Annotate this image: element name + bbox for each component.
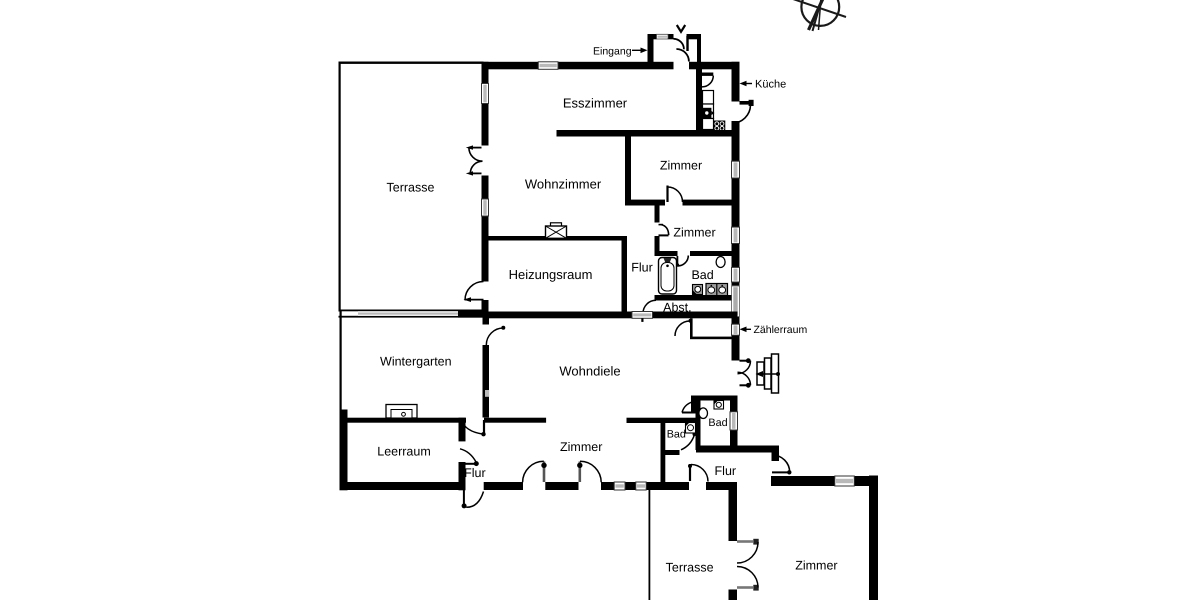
svg-text:Küche: Küche — [755, 79, 786, 91]
svg-text:Flur: Flur — [631, 261, 653, 275]
svg-text:Esszimmer: Esszimmer — [563, 96, 628, 111]
svg-text:Wohnzimmer: Wohnzimmer — [525, 177, 602, 192]
svg-text:Wintergarten: Wintergarten — [380, 355, 452, 369]
svg-text:Flur: Flur — [715, 464, 737, 478]
svg-text:Zimmer: Zimmer — [673, 226, 715, 240]
svg-text:Terrasse: Terrasse — [387, 181, 435, 195]
svg-text:Leerraum: Leerraum — [377, 445, 431, 459]
svg-text:Eingang: Eingang — [593, 46, 632, 58]
svg-text:Bad: Bad — [667, 429, 686, 441]
svg-text:Zimmer: Zimmer — [660, 159, 702, 173]
svg-text:Terrasse: Terrasse — [666, 561, 714, 575]
svg-text:Heizungsraum: Heizungsraum — [509, 267, 593, 282]
svg-text:Zimmer: Zimmer — [795, 559, 837, 573]
svg-text:Zählerraum: Zählerraum — [754, 324, 808, 336]
svg-text:Flur: Flur — [464, 466, 486, 480]
svg-text:Bad: Bad — [691, 268, 713, 282]
svg-text:Wohndiele: Wohndiele — [559, 364, 620, 379]
svg-text:Bad: Bad — [708, 417, 727, 429]
svg-text:Zimmer: Zimmer — [560, 440, 602, 454]
